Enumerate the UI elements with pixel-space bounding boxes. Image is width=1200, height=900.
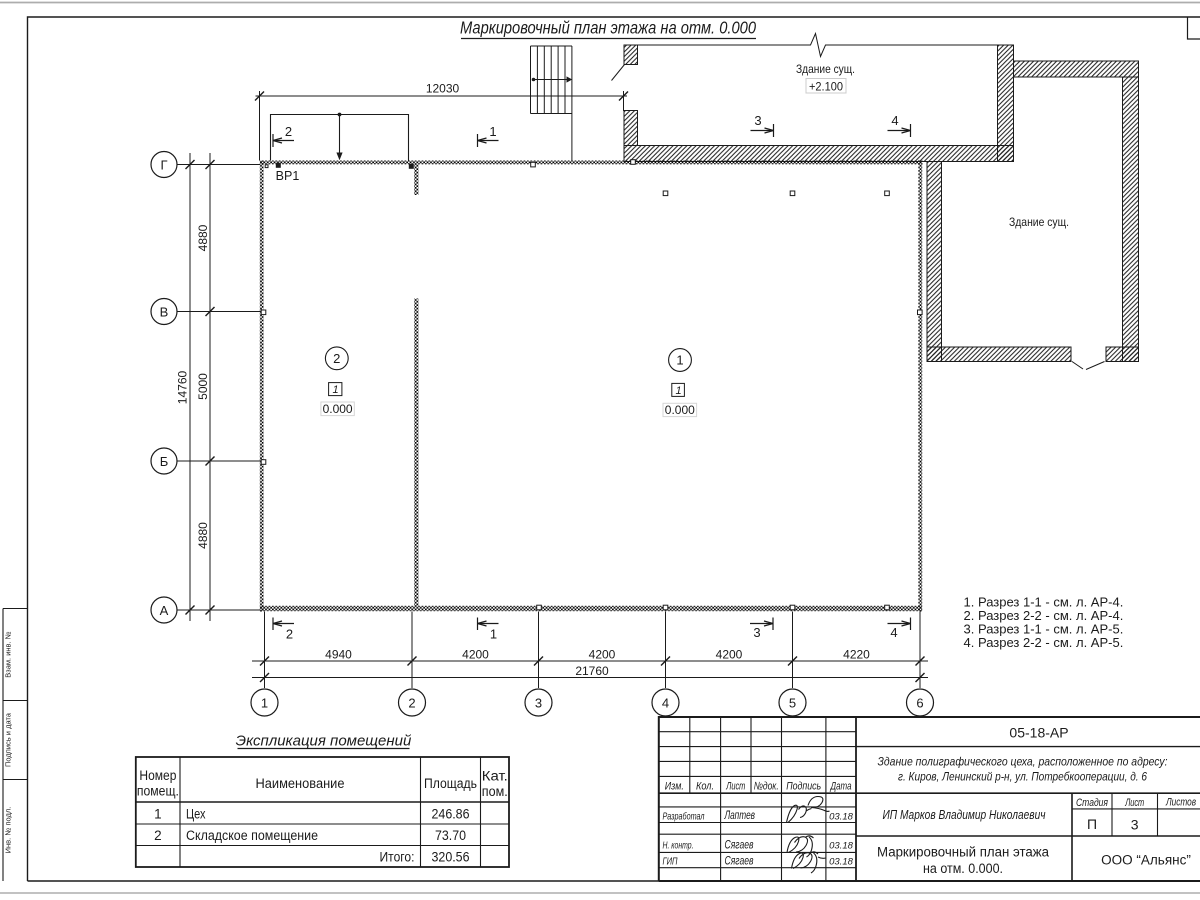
- svg-text:Здание сущ.: Здание сущ.: [796, 62, 855, 76]
- svg-text:на отм. 0.000.: на отм. 0.000.: [923, 861, 1003, 876]
- svg-text:Инв. № подл.: Инв. № подл.: [4, 807, 13, 854]
- svg-text:Листов: Листов: [1165, 797, 1196, 809]
- svg-text:14760: 14760: [176, 370, 190, 404]
- svg-text:№док.: №док.: [754, 781, 779, 793]
- svg-text:05-18-АР: 05-18-АР: [1009, 725, 1068, 741]
- svg-text:ВР1: ВР1: [276, 169, 300, 183]
- svg-text:Подпись и дата: Подпись и дата: [4, 712, 13, 767]
- svg-text:ГИП: ГИП: [663, 856, 678, 868]
- svg-text:4: 4: [890, 625, 897, 640]
- svg-text:Лист: Лист: [726, 781, 746, 793]
- svg-text:4880: 4880: [196, 522, 210, 549]
- svg-text:3: 3: [1131, 817, 1139, 833]
- svg-text:Лаптев: Лаптев: [724, 810, 755, 822]
- svg-text:3: 3: [754, 113, 761, 128]
- svg-text:Сягаев: Сягаев: [725, 856, 754, 868]
- svg-text:Кол.: Кол.: [696, 781, 714, 793]
- svg-text:2: 2: [333, 351, 340, 366]
- svg-text:Б: Б: [160, 454, 169, 469]
- svg-text:П: П: [1087, 816, 1097, 832]
- svg-text:2: 2: [408, 696, 415, 711]
- svg-text:1: 1: [261, 696, 268, 711]
- svg-text:4880: 4880: [196, 224, 210, 251]
- svg-text:3: 3: [535, 696, 542, 711]
- svg-text:Дата: Дата: [829, 781, 851, 793]
- svg-text:Подпись: Подпись: [786, 781, 821, 793]
- svg-text:5000: 5000: [196, 373, 210, 400]
- svg-text:1: 1: [333, 384, 339, 396]
- svg-text:помещ.: помещ.: [137, 784, 179, 799]
- svg-text:4200: 4200: [589, 648, 616, 662]
- svg-text:246.86: 246.86: [432, 807, 470, 822]
- svg-text:Н. контр.: Н. контр.: [663, 840, 694, 852]
- svg-text:1: 1: [676, 353, 683, 368]
- svg-text:1: 1: [675, 385, 681, 397]
- svg-text:ООО “Альянс”: ООО “Альянс”: [1101, 853, 1191, 868]
- svg-text:Здание полиграфического цеха,: Здание полиграфического цеха, расположен…: [878, 755, 1168, 769]
- svg-text:пом.: пом.: [482, 784, 508, 799]
- svg-text:4. Разрез 2-2 - см. л. АР-5.: 4. Разрез 2-2 - см. л. АР-5.: [964, 635, 1124, 650]
- svg-text:Маркировочный план этажа на от: Маркировочный план этажа на отм. 0.000: [460, 18, 756, 38]
- svg-text:4220: 4220: [843, 648, 870, 662]
- svg-text:4: 4: [662, 696, 669, 711]
- svg-text:Лист: Лист: [1125, 797, 1145, 809]
- svg-text:Площадь: Площадь: [424, 776, 477, 791]
- svg-text:Разработал: Разработал: [663, 811, 705, 823]
- svg-text:12030: 12030: [426, 82, 460, 96]
- svg-text:Экспликация помещений: Экспликация помещений: [236, 733, 412, 750]
- svg-text:2: 2: [154, 828, 162, 843]
- svg-text:г. Киров, Ленинский р-н, ул.: г. Киров, Ленинский р-н, ул. Потребкоопе…: [898, 770, 1147, 784]
- svg-text:Кат.: Кат.: [482, 769, 508, 784]
- svg-text:Складское помещение: Складское помещение: [186, 828, 318, 843]
- svg-text:03.18: 03.18: [829, 857, 853, 868]
- svg-text:Г: Г: [160, 158, 167, 173]
- svg-text:21760: 21760: [575, 664, 609, 678]
- svg-text:03.18: 03.18: [829, 812, 853, 823]
- svg-text:4: 4: [891, 113, 898, 128]
- svg-text:73.70: 73.70: [435, 828, 466, 843]
- svg-text:В: В: [160, 305, 169, 320]
- svg-text:6: 6: [916, 696, 923, 711]
- svg-text:А: А: [160, 603, 169, 618]
- svg-text:ИП Марков Владимир Николаевич: ИП Марков Владимир Николаевич: [883, 807, 1046, 822]
- svg-text:3: 3: [753, 625, 760, 640]
- svg-text:+2.100: +2.100: [809, 80, 843, 94]
- svg-text:4200: 4200: [716, 648, 743, 662]
- svg-text:0.000: 0.000: [323, 402, 353, 416]
- svg-text:Итого:: Итого:: [380, 850, 415, 865]
- svg-text:Наименование: Наименование: [256, 776, 345, 791]
- svg-text:4200: 4200: [462, 648, 489, 662]
- svg-text:4940: 4940: [325, 648, 352, 662]
- svg-text:Сягаев: Сягаев: [725, 840, 754, 852]
- svg-text:1: 1: [489, 124, 496, 139]
- svg-text:Маркировочный план этажа: Маркировочный план этажа: [877, 845, 1049, 860]
- svg-text:Здание сущ.: Здание сущ.: [1009, 215, 1069, 229]
- svg-text:Взам. инв. №: Взам. инв. №: [4, 631, 13, 677]
- svg-text:5: 5: [789, 696, 796, 711]
- svg-text:0.000: 0.000: [665, 403, 695, 417]
- svg-text:03.18: 03.18: [829, 841, 853, 852]
- svg-text:1: 1: [490, 627, 497, 642]
- svg-text:Номер: Номер: [139, 768, 176, 783]
- svg-text:320.56: 320.56: [432, 850, 470, 865]
- svg-text:Цех: Цех: [186, 807, 206, 822]
- svg-text:2: 2: [286, 627, 293, 642]
- svg-text:2: 2: [285, 124, 292, 139]
- svg-text:Изм.: Изм.: [665, 781, 684, 793]
- svg-text:1: 1: [154, 807, 162, 822]
- svg-text:Стадия: Стадия: [1076, 797, 1108, 809]
